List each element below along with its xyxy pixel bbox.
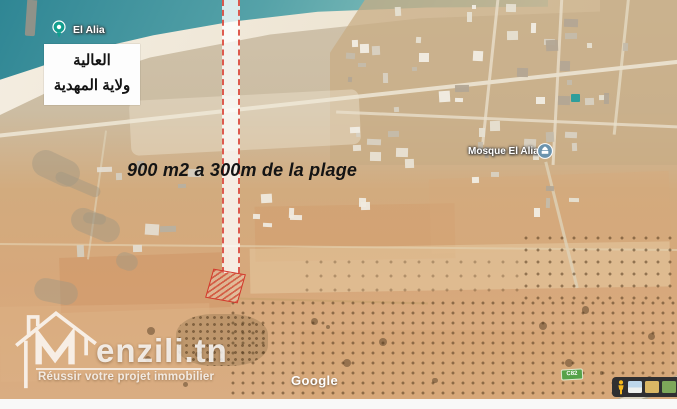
terrain-feature	[455, 85, 469, 92]
terrain-feature	[565, 33, 577, 39]
terrain-feature	[178, 183, 186, 187]
pegman-icon[interactable]	[617, 380, 625, 395]
terrain-feature	[405, 159, 414, 169]
terrain-feature	[349, 127, 359, 134]
map-control-bar[interactable]	[612, 377, 677, 397]
terrain-feature	[546, 186, 554, 191]
brand-underline	[36, 368, 201, 370]
layer-thumbnail-terrain[interactable]	[645, 381, 659, 393]
satellite-map: El Alia Mosque El Alia العالية ولاية الم…	[0, 0, 677, 399]
terrain-feature	[412, 67, 417, 71]
terrain-feature	[383, 73, 388, 83]
terrain-feature	[160, 226, 176, 232]
terrain-feature	[353, 145, 361, 152]
terrain-feature	[372, 46, 381, 55]
region-line1: العالية	[48, 49, 136, 74]
terrain-feature	[396, 148, 408, 158]
terrain-feature	[77, 245, 85, 257]
pool	[571, 94, 580, 102]
terrain-feature	[546, 132, 555, 143]
brand-name: enzili.tn	[96, 332, 228, 370]
distance-band	[222, 0, 240, 273]
terrain-feature	[97, 166, 112, 172]
terrain-feature	[567, 80, 572, 85]
olive-grove	[300, 255, 520, 300]
terrain-feature	[419, 53, 429, 62]
terrain-feature	[133, 245, 142, 252]
region-line2: ولاية المهدية	[48, 74, 136, 99]
google-watermark: Google	[291, 373, 338, 388]
terrain-feature	[506, 4, 516, 12]
terrain-feature	[144, 224, 158, 236]
terrain-feature	[263, 223, 272, 227]
terrain-feature	[560, 61, 570, 71]
listing-image: El Alia Mosque El Alia العالية ولاية الم…	[0, 0, 677, 409]
terrain-feature	[289, 208, 294, 218]
terrain-feature	[585, 98, 594, 105]
terrain-feature	[565, 132, 577, 138]
layer-thumbnail-green[interactable]	[662, 381, 676, 393]
terrain-feature	[394, 107, 400, 113]
terrain-feature	[116, 173, 122, 180]
terrain-feature	[564, 19, 578, 27]
mosque-icon	[537, 143, 553, 159]
terrain-feature	[388, 130, 400, 137]
region-text-box: العالية ولاية المهدية	[44, 44, 140, 105]
terrain-feature	[415, 37, 420, 44]
terrain-feature	[587, 43, 592, 48]
terrain-feature	[604, 93, 609, 104]
brand-tagline: Réussir votre projet immobilier	[38, 371, 214, 383]
bottom-margin	[0, 399, 677, 409]
terrain-feature	[438, 91, 450, 102]
terrain-feature	[531, 23, 536, 33]
olive-grove	[520, 232, 677, 300]
terrain-feature	[472, 177, 479, 184]
terrain-feature	[491, 172, 499, 177]
terrain-feature	[507, 31, 519, 40]
terrain-feature	[536, 97, 545, 104]
mosque-label: Mosque El Alia	[468, 146, 539, 157]
terrain-feature	[261, 194, 272, 204]
place-label: El Alia	[73, 24, 105, 36]
terrain-feature	[361, 202, 370, 210]
place-pin-icon	[52, 20, 66, 39]
terrain-feature	[479, 128, 485, 137]
terrain-feature	[367, 139, 381, 145]
terrain-feature	[370, 152, 381, 161]
terrain-feature	[360, 44, 369, 54]
terrain-feature	[345, 53, 355, 60]
terrain-feature	[571, 143, 577, 152]
terrain-feature	[472, 5, 477, 9]
terrain-feature	[395, 7, 401, 16]
terrain-feature	[517, 68, 528, 77]
terrain-feature	[569, 198, 579, 203]
terrain-feature	[358, 63, 366, 67]
terrain-feature	[253, 214, 260, 219]
terrain-feature	[347, 77, 352, 82]
terrain-feature	[352, 40, 358, 47]
terrain-feature	[545, 197, 550, 207]
terrain-feature	[455, 98, 463, 102]
terrain-feature	[534, 208, 540, 217]
terrain-feature	[472, 51, 483, 61]
plot-caption: 900 m2 a 300m de la plage	[127, 160, 357, 181]
terrain-feature	[558, 96, 571, 105]
terrain-feature	[467, 12, 472, 22]
road-badge: C82	[561, 368, 584, 380]
terrain-feature	[546, 40, 558, 51]
terrain-feature	[623, 42, 628, 50]
layer-thumbnail-map[interactable]	[628, 381, 642, 393]
terrain-feature	[490, 121, 501, 131]
brand-watermark: enzili.tn Réussir votre projet immobilie…	[14, 306, 254, 396]
